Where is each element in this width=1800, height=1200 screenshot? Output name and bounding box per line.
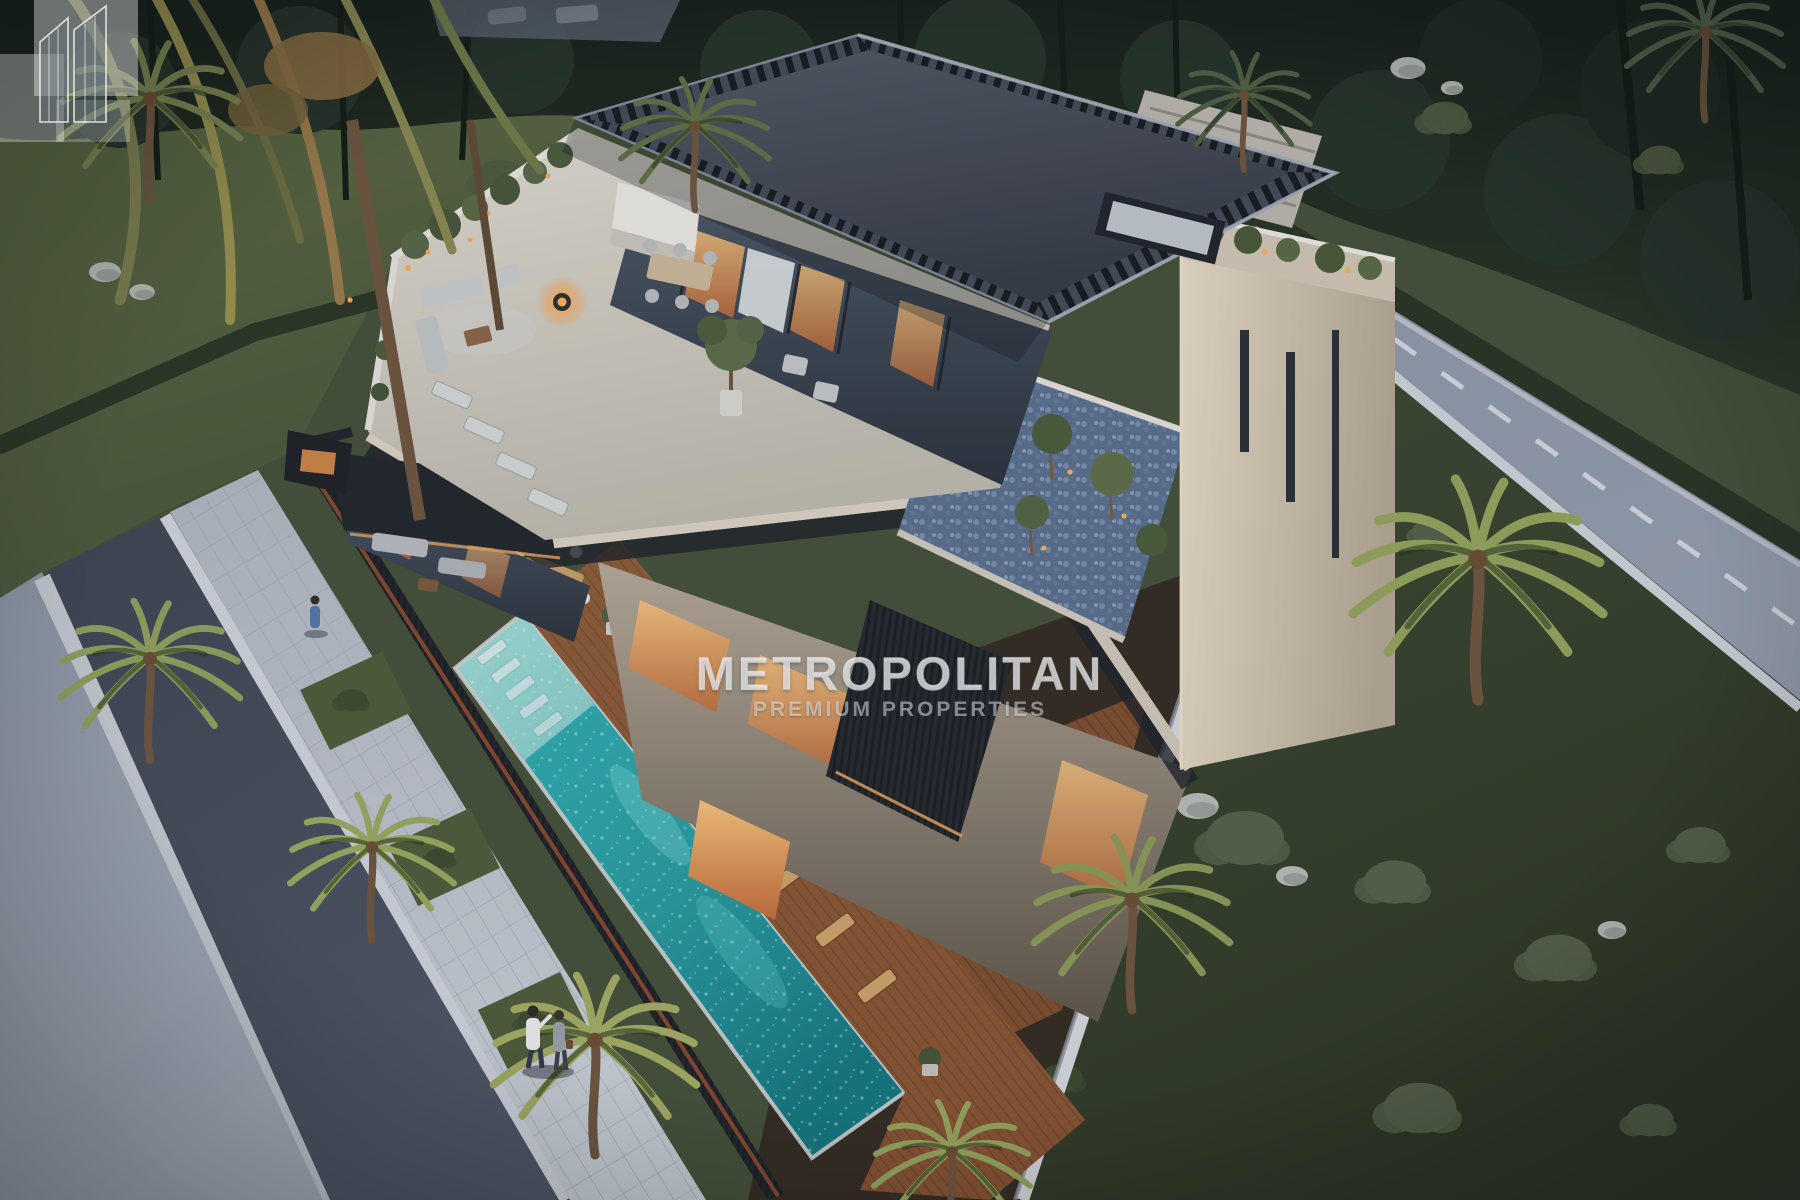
render-canvas	[0, 0, 1800, 1200]
vignette	[0, 0, 1800, 1200]
villa-aerial-render: METROPOLITAN PREMIUM PROPERTIES	[0, 0, 1800, 1200]
